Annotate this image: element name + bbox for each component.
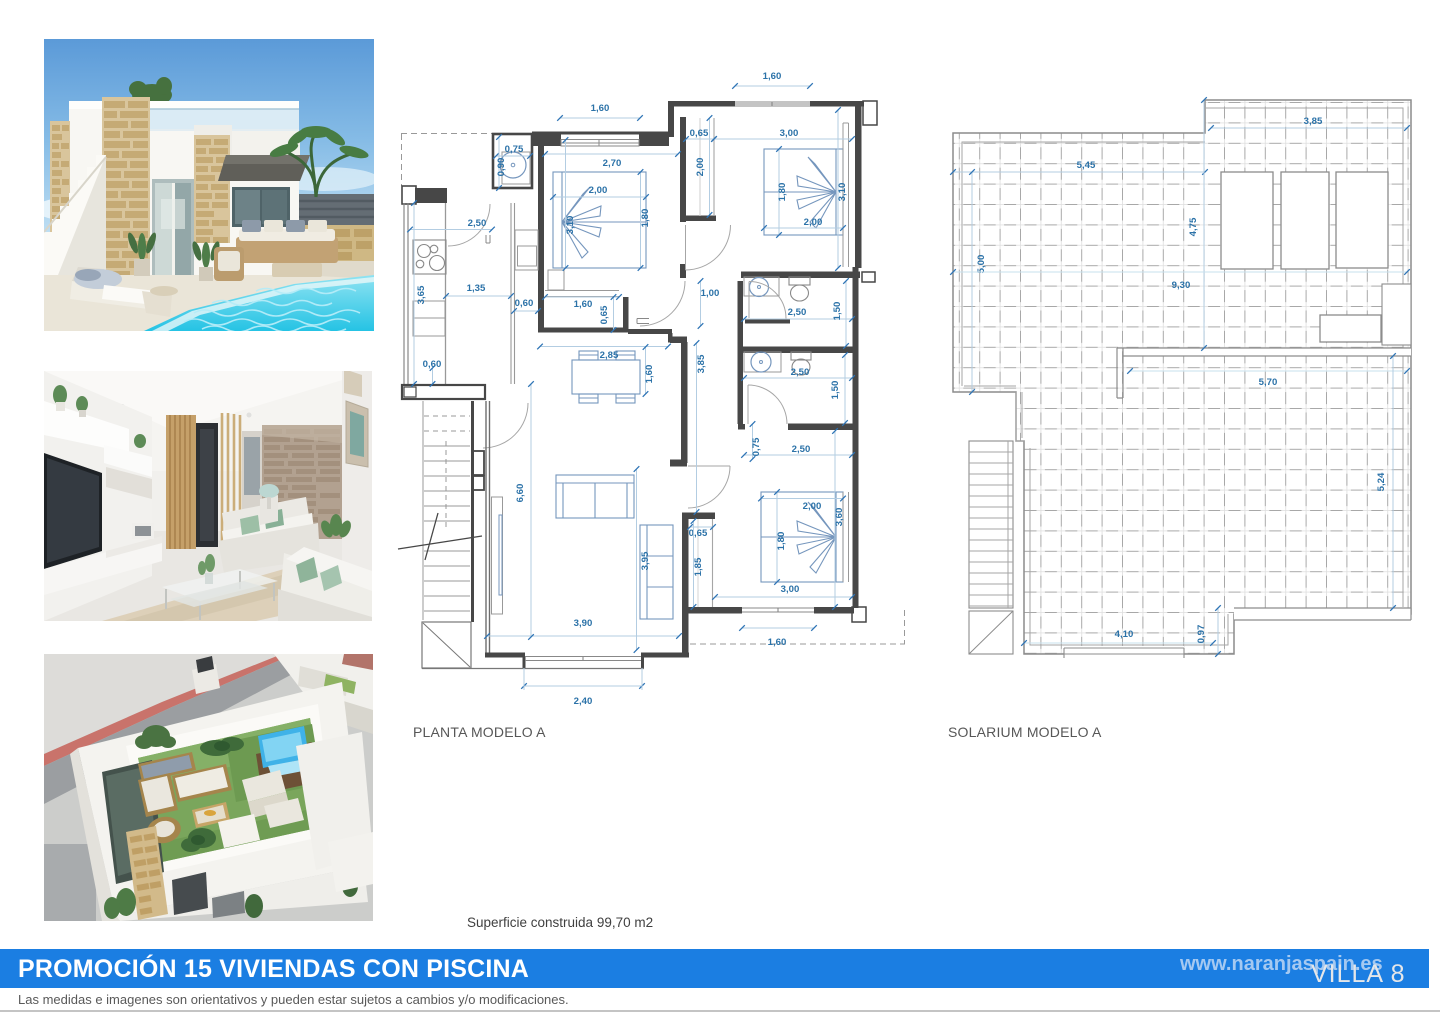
svg-text:2,50: 2,50 bbox=[468, 218, 487, 229]
svg-text:1,50: 1,50 bbox=[832, 302, 843, 321]
svg-text:5,45: 5,45 bbox=[1077, 160, 1096, 171]
svg-text:1,80: 1,80 bbox=[777, 183, 788, 202]
svg-text:1,35: 1,35 bbox=[467, 283, 486, 294]
svg-text:3,85: 3,85 bbox=[1304, 116, 1323, 127]
svg-text:0,60: 0,60 bbox=[423, 359, 442, 370]
svg-text:1,60: 1,60 bbox=[768, 637, 787, 648]
svg-text:2,85: 2,85 bbox=[600, 350, 619, 361]
svg-text:1,50: 1,50 bbox=[830, 381, 841, 400]
svg-text:3,00: 3,00 bbox=[781, 584, 800, 595]
svg-text:3,85: 3,85 bbox=[696, 354, 707, 373]
svg-text:1,60: 1,60 bbox=[591, 103, 610, 114]
svg-text:0,65: 0,65 bbox=[690, 128, 709, 139]
svg-text:2,00: 2,00 bbox=[695, 158, 706, 177]
svg-text:5,00: 5,00 bbox=[976, 255, 987, 274]
svg-text:2,00: 2,00 bbox=[804, 217, 823, 228]
svg-text:3,65: 3,65 bbox=[416, 285, 427, 304]
svg-text:3,90: 3,90 bbox=[574, 618, 593, 629]
svg-text:2,40: 2,40 bbox=[574, 696, 593, 707]
svg-text:3,95: 3,95 bbox=[640, 551, 651, 570]
svg-text:5,70: 5,70 bbox=[1259, 377, 1278, 388]
svg-text:2,00: 2,00 bbox=[803, 501, 822, 512]
svg-text:0,60: 0,60 bbox=[515, 298, 534, 309]
svg-text:1,80: 1,80 bbox=[640, 209, 651, 228]
svg-text:1,80: 1,80 bbox=[776, 532, 787, 551]
svg-text:9,30: 9,30 bbox=[1172, 280, 1191, 291]
svg-text:3,60: 3,60 bbox=[834, 508, 845, 527]
svg-text:0,65: 0,65 bbox=[689, 528, 708, 539]
svg-text:4,10: 4,10 bbox=[1115, 629, 1134, 640]
svg-text:2,00: 2,00 bbox=[589, 185, 608, 196]
svg-text:3,00: 3,00 bbox=[780, 128, 799, 139]
svg-text:3,10: 3,10 bbox=[837, 183, 848, 202]
svg-text:3,10: 3,10 bbox=[565, 216, 576, 235]
svg-text:0,65: 0,65 bbox=[599, 305, 610, 324]
svg-text:2,50: 2,50 bbox=[788, 307, 807, 318]
svg-text:1,60: 1,60 bbox=[644, 365, 655, 384]
svg-text:0,75: 0,75 bbox=[505, 144, 524, 155]
svg-text:0,75: 0,75 bbox=[751, 437, 762, 456]
svg-text:2,50: 2,50 bbox=[791, 367, 810, 378]
svg-text:1,85: 1,85 bbox=[693, 557, 704, 576]
svg-text:2,50: 2,50 bbox=[792, 444, 811, 455]
svg-text:1,60: 1,60 bbox=[574, 299, 593, 310]
svg-text:0,90: 0,90 bbox=[496, 158, 507, 177]
svg-text:0,97: 0,97 bbox=[1196, 625, 1207, 644]
svg-text:5,24: 5,24 bbox=[1376, 472, 1387, 491]
svg-text:4,75: 4,75 bbox=[1188, 217, 1199, 236]
svg-text:2,70: 2,70 bbox=[603, 158, 622, 169]
svg-text:1,60: 1,60 bbox=[763, 71, 782, 82]
svg-text:1,00: 1,00 bbox=[701, 288, 720, 299]
svg-text:6,60: 6,60 bbox=[515, 484, 526, 503]
